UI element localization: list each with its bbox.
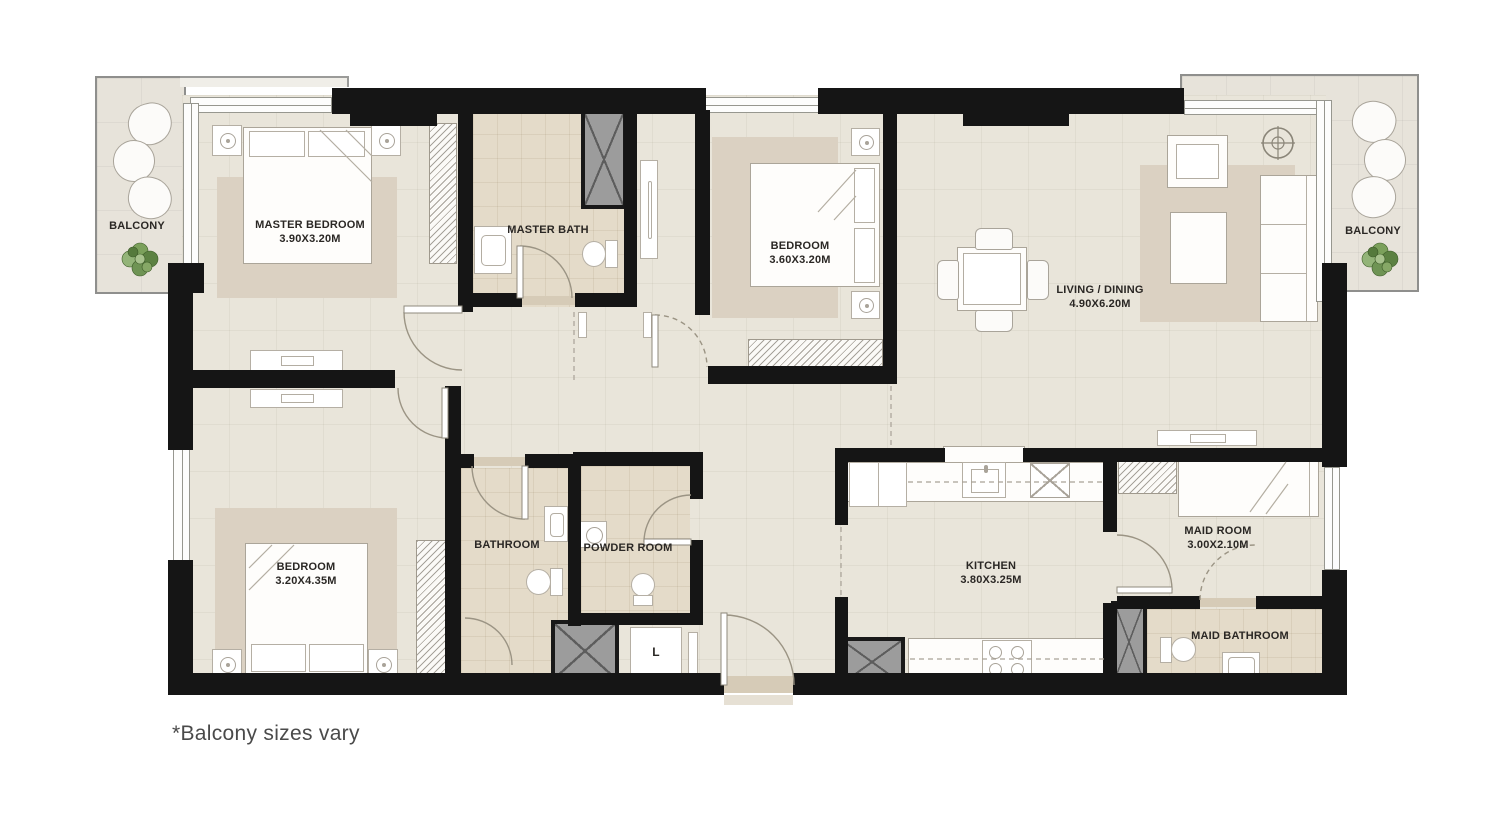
room-name: KITCHEN [960, 559, 1021, 573]
kitchen-label: KITCHEN 3.80X3.25M [960, 559, 1021, 587]
room-dims: 3.00X2.10M [1184, 538, 1251, 552]
maid-bathroom-label: MAID BATHROOM [1191, 629, 1289, 643]
master-bath-door-arc [520, 246, 572, 298]
maid-door-arc [1117, 535, 1172, 590]
laundry-label: L [652, 645, 660, 659]
room-dims: 3.80X3.25M [960, 573, 1021, 587]
floorplan: BALCONY MASTER BEDROOM 3.90X3.20M MASTER… [0, 0, 1500, 815]
bedroom-bottom-door-arc [398, 388, 448, 438]
master-bath-door-panel [517, 246, 523, 298]
master-bed-fold [320, 130, 372, 182]
maid-bath-door-arc [1200, 545, 1255, 600]
living-dining-label: LIVING / DINING 4.90X6.20M [1056, 283, 1143, 311]
powder-room-label: POWDER ROOM [584, 541, 673, 555]
room-dims: 3.20X4.35M [275, 574, 336, 588]
room-name: BEDROOM [275, 560, 336, 574]
bedroom-top-door-arc [655, 315, 707, 367]
room-name: LIVING / DINING [1056, 283, 1143, 297]
balcony-left-label: BALCONY [109, 219, 165, 233]
room-name: MASTER BEDROOM [255, 218, 365, 232]
room-dims: 3.60X3.20M [769, 253, 830, 267]
bedroom-top-bed-fold [818, 170, 856, 220]
master-bedroom-door-panel [404, 306, 462, 313]
powder-door-arc [644, 495, 691, 542]
bedroom-bottom-door-panel [442, 388, 448, 438]
maid-room-label: MAID ROOM 3.00X2.10M [1184, 524, 1251, 552]
bathroom-door-panel [522, 466, 528, 519]
room-name: MAID ROOM [1184, 524, 1251, 538]
entry-door-arc [724, 615, 794, 685]
door-swings-overlay [0, 0, 1500, 815]
shower-door-arc [465, 618, 512, 665]
bedroom-bottom-label: BEDROOM 3.20X4.35M [275, 560, 336, 588]
master-bath-label: MASTER BATH [507, 223, 588, 237]
bedroom-top-door-panel [652, 315, 658, 367]
maid-door-panel [1117, 587, 1172, 593]
master-bedroom-door-arc [404, 312, 462, 370]
maid-bed-fold [1250, 462, 1288, 514]
room-name: BEDROOM [769, 239, 830, 253]
bathroom-door-arc [472, 466, 525, 519]
room-dims: 3.90X3.20M [255, 232, 365, 246]
footnote: *Balcony sizes vary [172, 722, 360, 746]
balcony-right-label: BALCONY [1345, 224, 1401, 238]
room-dims: 4.90X6.20M [1056, 297, 1143, 311]
bathroom-label: BATHROOM [474, 538, 540, 552]
master-bedroom-label: MASTER BEDROOM 3.90X3.20M [255, 218, 365, 246]
entry-door-panel [721, 613, 727, 685]
bedroom-top-label: BEDROOM 3.60X3.20M [769, 239, 830, 267]
